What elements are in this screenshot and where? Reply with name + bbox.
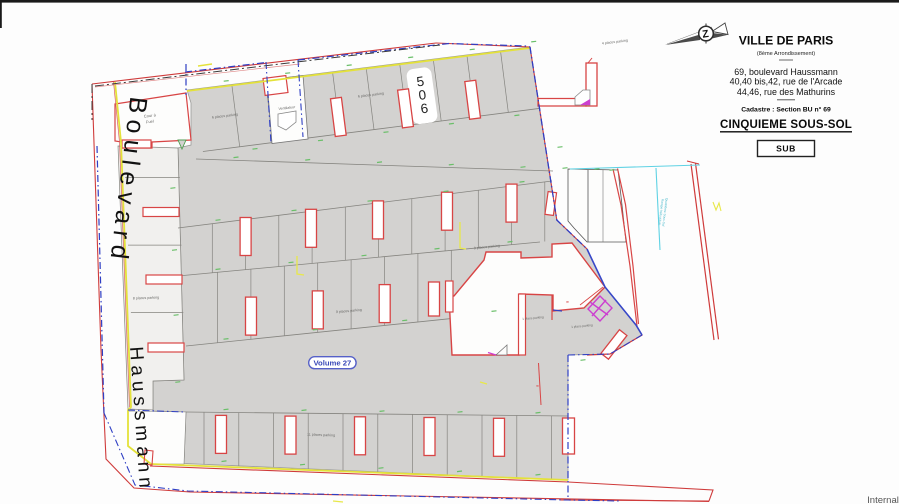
svg-text:Cadastre : Section BU n° 69: Cadastre : Section BU n° 69 [741, 106, 831, 114]
svg-text:44,46, rue des Mathurins: 44,46, rue des Mathurins [737, 87, 836, 97]
svg-text:SUB: SUB [776, 144, 796, 154]
svg-text:VILLE DE PARIS: VILLE DE PARIS [739, 34, 834, 48]
svg-text:Volume 27: Volume 27 [313, 359, 351, 368]
svg-text:CINQUIEME SOUS-SOL: CINQUIEME SOUS-SOL [720, 119, 852, 131]
svg-text:40,40 bis,42, rue de l'Arcade: 40,40 bis,42, rue de l'Arcade [730, 76, 843, 86]
svg-text:Internal: Internal [867, 495, 899, 504]
svg-text:(8ème Arrondissement): (8ème Arrondissement) [757, 51, 815, 57]
